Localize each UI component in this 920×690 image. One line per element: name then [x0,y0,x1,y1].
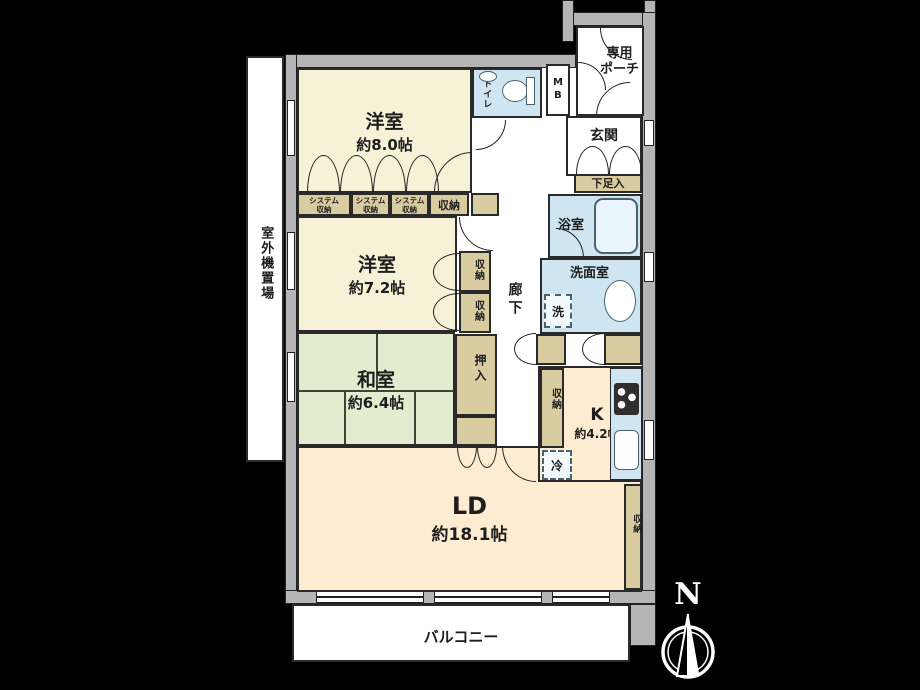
window-west-1 [287,100,295,156]
outdoor-unit-area-label: 室外機置場 [257,226,273,301]
shoe-cabinet: 下足入 [574,174,642,193]
oshiire-label: 押入 [472,354,487,384]
oshiire: 押入 [455,334,497,416]
stove [614,383,639,415]
meter-box: M B [546,64,570,116]
washroom-label: 洗面室 [570,266,609,282]
system-storage-2: システム 収納 [351,193,390,216]
toilet-bowl [502,80,528,102]
washing-machine: 洗 [544,294,572,328]
window-south-3 [552,591,610,603]
kitchen-storage-label: 収納 [548,388,561,410]
compass-needle-icon [658,610,718,686]
oshiire-sub [455,416,497,446]
bedroom-8-name: 洋室 [365,107,403,134]
window-east-1 [644,120,654,146]
wall-porch-pillar-left [562,0,574,42]
window-south-1 [316,591,424,603]
system-storage-1-label: システム 収納 [299,197,349,214]
bathtub [594,198,638,254]
wall-east [642,12,656,608]
window-south-2 [434,591,542,603]
ld-storage-label: 収納 [630,514,641,534]
system-storage-2-label: システム 収納 [353,197,388,214]
toilet-sink [479,71,497,82]
living-dining-size: 約18.1帖 [432,520,508,545]
bedroom-72-storage-2: 収納 [459,292,491,333]
outdoor-unit-area: 室外機置場 [246,56,284,462]
compass: N [656,580,720,688]
kitchen-name: K [590,406,603,425]
hall-storage-left [536,334,566,365]
shoe-cabinet-label: 下足入 [576,177,640,191]
floor-plan: 室外機置場 専用 ポーチ M B 玄関 下足入 洋室 約8.0帖 トイレ システ… [0,0,920,690]
window-east-3 [644,420,654,460]
refrigerator: 冷 [542,450,572,480]
meter-box-label: M B [553,76,563,102]
bedroom-72-storage-1-label: 収納 [471,259,484,281]
storage-top-row-label: 収納 [431,199,467,213]
wall-north [285,54,576,68]
kitchen-storage: 収納 [540,368,564,448]
bedroom-72-size: 約7.2帖 [349,277,406,298]
hall-storage-right [604,334,642,365]
compass-north-label: N [656,580,720,610]
washing-machine-label: 洗 [552,303,564,320]
refrigerator-label: 冷 [551,457,563,474]
hallway-label: 廊下 [505,282,523,318]
bedroom-8-size: 約8.0帖 [356,134,413,155]
balcony: バルコニー [292,604,630,662]
ld-storage: 収納 [624,484,642,590]
window-west-2 [287,232,295,290]
toilet-label: トイレ [480,79,491,109]
wall-balcony-right [630,604,656,646]
washroom-sink [604,280,636,322]
bedroom-72-storage-2-label: 収納 [471,300,484,322]
washitsu: 和室 約6.4帖 [297,332,455,446]
storage-top-row-2 [471,193,499,216]
entrance-label: 玄関 [590,128,618,146]
washitsu-size: 約6.4帖 [348,392,405,413]
living-dining-name: LD [452,493,487,519]
bedroom-72-storage-1: 収納 [459,251,491,292]
bedroom-72-name: 洋室 [358,250,396,277]
system-storage-3-label: システム 収納 [392,197,427,214]
storage-top-row: 収納 [429,193,469,216]
window-west-3 [287,352,295,402]
system-storage-3: システム 収納 [390,193,429,216]
system-storage-1: システム 収納 [297,193,351,216]
window-east-2 [644,252,654,282]
washitsu-name: 和室 [357,365,395,392]
kitchen-sink [614,430,639,470]
balcony-label: バルコニー [294,628,628,647]
toilet-tank [526,77,535,105]
